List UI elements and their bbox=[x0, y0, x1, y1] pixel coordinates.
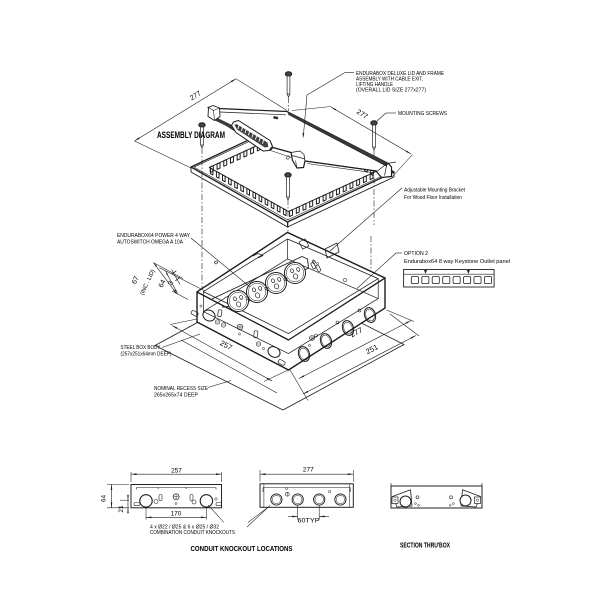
svg-text:265x265x74 DEEP: 265x265x74 DEEP bbox=[154, 393, 198, 399]
svg-text:ASSEMBLY DIAGRAM: ASSEMBLY DIAGRAM bbox=[157, 130, 225, 141]
svg-text:ENDURABOX64 POWER 4 WAY: ENDURABOX64 POWER 4 WAY bbox=[117, 233, 190, 239]
svg-text:STEEL BOX BODY: STEEL BOX BODY bbox=[121, 345, 161, 351]
svg-text:Adjustable Mounting Bracket: Adjustable Mounting Bracket bbox=[404, 188, 465, 194]
svg-text:277: 277 bbox=[303, 467, 314, 474]
svg-text:For Wood Floor Installation: For Wood Floor Installation bbox=[404, 195, 462, 201]
svg-text:21: 21 bbox=[118, 505, 125, 513]
svg-text:60TYP: 60TYP bbox=[298, 518, 320, 525]
svg-text:OPTION 2: OPTION 2 bbox=[404, 251, 428, 257]
svg-text:257: 257 bbox=[171, 468, 182, 475]
svg-text:(257x251x64mm DEEP): (257x251x64mm DEEP) bbox=[121, 352, 172, 358]
svg-text:CONDUIT KNOCKOUT LOCATIONS: CONDUIT KNOCKOUT LOCATIONS bbox=[191, 544, 293, 553]
svg-text:64: 64 bbox=[101, 495, 108, 503]
svg-text:COMBINATION CONDUIT KNOCKOUTS: COMBINATION CONDUIT KNOCKOUTS bbox=[150, 530, 235, 536]
svg-text:Endurabox64 8 way Keystone Out: Endurabox64 8 way Keystone Outlet panel bbox=[404, 259, 510, 265]
svg-text:(OVERALL LID SIZE 277x277): (OVERALL LID SIZE 277x277) bbox=[356, 88, 426, 94]
svg-text:NOMINAL RECESS SIZE: NOMINAL RECESS SIZE bbox=[154, 386, 208, 392]
svg-text:MOUNTING SCREWS: MOUNTING SCREWS bbox=[398, 111, 447, 117]
svg-text:170: 170 bbox=[171, 511, 182, 518]
svg-text:SECTION THRU'BOX: SECTION THRU'BOX bbox=[400, 541, 450, 550]
svg-text:AUTOSWITCH OMEGA A 10A: AUTOSWITCH OMEGA A 10A bbox=[117, 240, 183, 246]
